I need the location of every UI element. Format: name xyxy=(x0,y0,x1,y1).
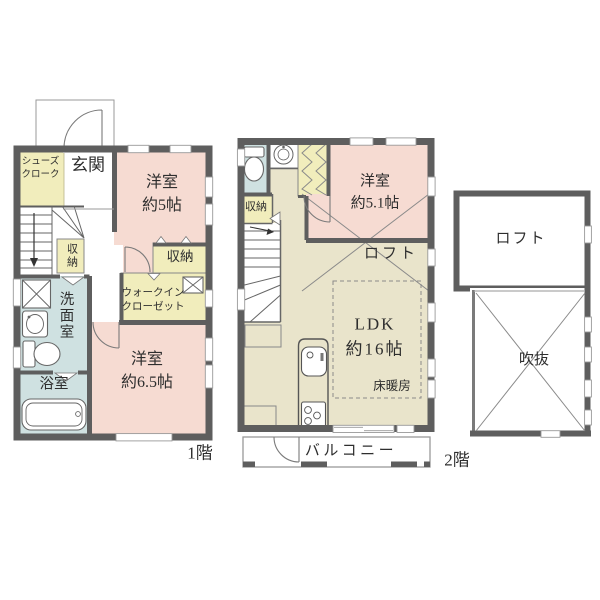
label-shoe-cloak: シューズ クローク xyxy=(21,156,59,182)
label-void: 吹抜 xyxy=(519,350,549,372)
label-loft: ロフト xyxy=(495,229,546,251)
label-entrance: 玄関 xyxy=(71,154,105,179)
floor2-plan xyxy=(237,138,435,467)
floorplan-linework xyxy=(0,0,600,600)
kitchen-sink xyxy=(302,347,327,376)
label-floor2: 2階 xyxy=(444,449,470,474)
label-ldk: LDK 約16帖 xyxy=(346,312,405,361)
room-hanger-closet xyxy=(298,141,328,196)
floor-plan: シューズ クローク 玄関 洋室 約5帖 収納 収納 ウォークイン クローゼット … xyxy=(0,0,600,600)
label-floor-heating: 床暖房 xyxy=(373,377,411,395)
sink-f1 xyxy=(23,311,48,337)
label-balcony: バルコニー xyxy=(305,441,397,463)
label-bedroom5: 洋室 約5帖 xyxy=(142,171,182,217)
label-floor1: 1階 xyxy=(187,442,213,467)
round-sink-f2 xyxy=(274,145,293,164)
toilet-f2 xyxy=(244,147,264,181)
label-bath: 浴室 xyxy=(40,374,69,395)
label-bedroom51: 洋室 約5.1帖 xyxy=(351,171,400,215)
label-bedroom65: 洋室 約6.5帖 xyxy=(121,348,173,394)
label-loft-f2: ロフト xyxy=(364,244,418,266)
label-closet-f2: 収納 xyxy=(245,200,267,216)
wic-window-box xyxy=(183,277,203,293)
label-bedroom5-closet: 収納 xyxy=(167,247,194,267)
label-walk-in-closet: ウォークイン クローゼット xyxy=(122,286,185,313)
counter-1 xyxy=(245,325,281,347)
bathtub xyxy=(22,399,86,430)
label-washroom: 洗面室 xyxy=(54,291,75,341)
washing-machine xyxy=(23,280,51,308)
label-stair-closet: 収納 xyxy=(63,243,79,269)
toilet-f1 xyxy=(23,341,60,367)
